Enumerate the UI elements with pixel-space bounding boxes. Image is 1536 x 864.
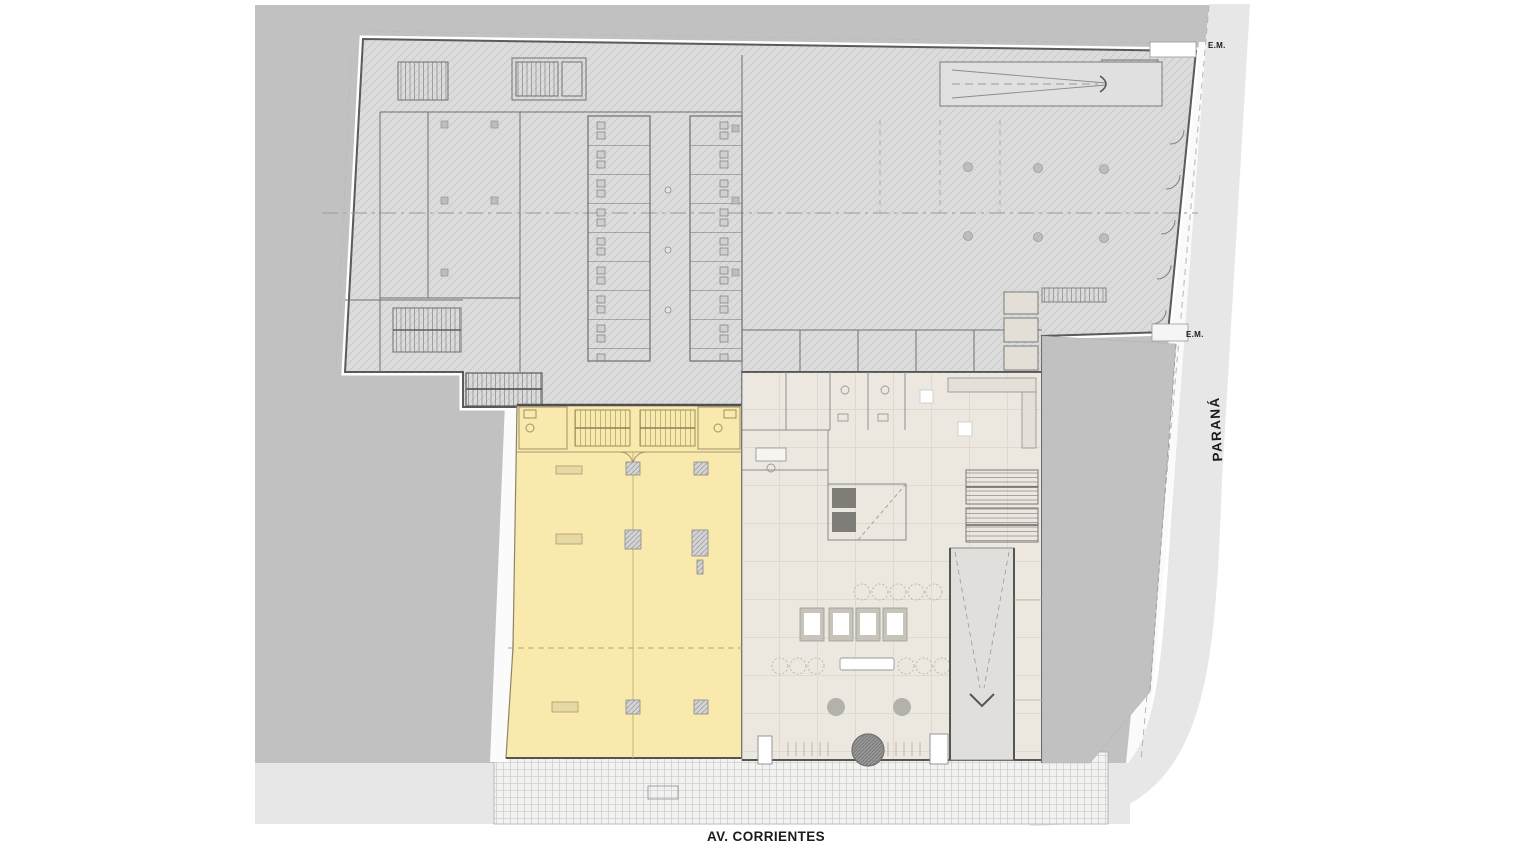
street-label-corrientes: AV. CORRIENTES [666,829,866,844]
skylight-square-2 [958,422,972,436]
vehicle-ramp-north [940,62,1162,106]
em-label-mid: E.M. [1186,330,1204,339]
em-label-top: E.M. [1208,41,1226,50]
floor-plan-page: AV. CORRIENTES PARANÁ E.M. E.M. [0,0,1536,864]
ramp-floor [950,548,1014,760]
stair-northwest [398,62,448,100]
elevator-bank [1004,292,1038,370]
skylight-square-1 [920,390,933,403]
em-notch-top [1150,42,1196,57]
em-notch-mid [1152,324,1188,341]
revolving-door [852,734,884,766]
stair-top-east [1042,288,1106,302]
sidewalk [494,752,1108,824]
highlighted-unit [506,405,742,758]
cells-column-east [690,116,742,361]
cells-column-west [588,116,650,361]
floor-plan-svg [0,0,1536,864]
stair-southwest [393,308,461,352]
stair-bump-south [466,373,542,406]
reception-counter [840,658,894,670]
